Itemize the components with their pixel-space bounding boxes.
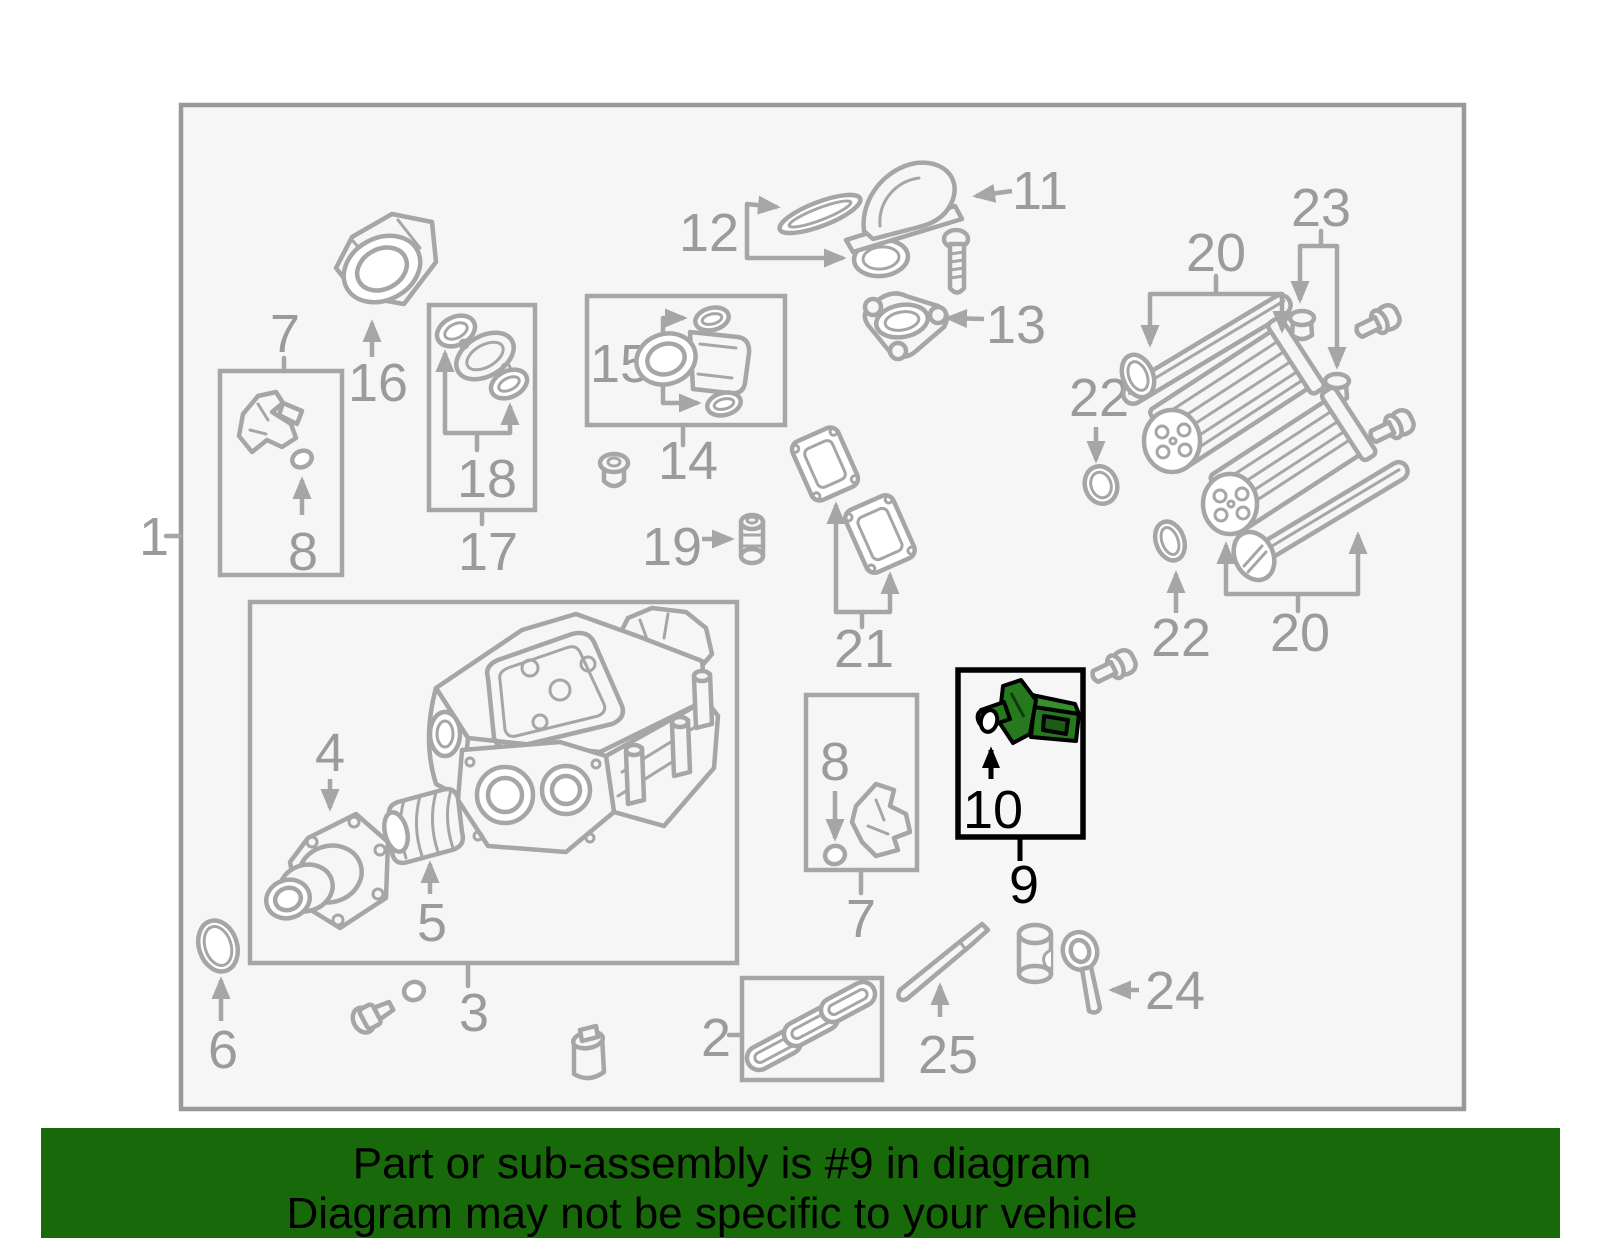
callout-5: 5 xyxy=(417,893,447,953)
callout-24: 24 xyxy=(1145,961,1205,1021)
callout-12: 12 xyxy=(679,203,739,263)
callout-13: 13 xyxy=(986,295,1046,355)
highlight-banner: Part or sub-assembly is #9 in diagram Di… xyxy=(41,1128,1560,1238)
part-23-grommet-a xyxy=(1290,311,1314,339)
callout-25: 25 xyxy=(918,1025,978,1085)
part-19-valve xyxy=(741,515,763,563)
callout-20a: 20 xyxy=(1186,223,1246,283)
callout-4: 4 xyxy=(315,723,345,783)
parts-diagram-canvas: 1 16 7 8 xyxy=(0,0,1600,1249)
callout-7b: 7 xyxy=(846,889,876,949)
callout-8b: 8 xyxy=(820,732,850,792)
callout-8: 8 xyxy=(288,522,318,582)
callout-10: 10 xyxy=(963,780,1023,840)
parts-catalog-page: 1 16 7 8 xyxy=(0,0,1600,1249)
callout-18: 18 xyxy=(457,449,517,509)
callout-17: 17 xyxy=(458,522,518,582)
callout-3: 3 xyxy=(459,983,489,1043)
banner-line-1: Part or sub-assembly is #9 in diagram xyxy=(353,1139,1092,1188)
callout-1: 1 xyxy=(139,507,169,567)
callout-1-group: 1 xyxy=(139,507,180,567)
callout-19: 19 xyxy=(642,517,702,577)
callout-14: 14 xyxy=(658,431,718,491)
callout-22b: 22 xyxy=(1151,608,1211,668)
leader-12-top xyxy=(747,204,777,207)
callout-16: 16 xyxy=(348,353,408,413)
callout-11: 11 xyxy=(1012,161,1068,221)
part-grommet-cup xyxy=(600,454,628,486)
callout-9: 9 xyxy=(1009,855,1039,915)
banner-line-2: Diagram may not be specific to your vehi… xyxy=(286,1189,1137,1238)
callout-2: 2 xyxy=(701,1008,731,1068)
leader-13 xyxy=(948,318,984,319)
callout-7: 7 xyxy=(270,304,300,364)
callout-22a: 22 xyxy=(1069,368,1129,428)
callout-6: 6 xyxy=(208,1020,238,1080)
callout-21: 21 xyxy=(834,619,894,679)
part-canister xyxy=(572,1026,604,1078)
part-bushing xyxy=(1019,925,1051,982)
callout-20b: 20 xyxy=(1270,603,1330,663)
